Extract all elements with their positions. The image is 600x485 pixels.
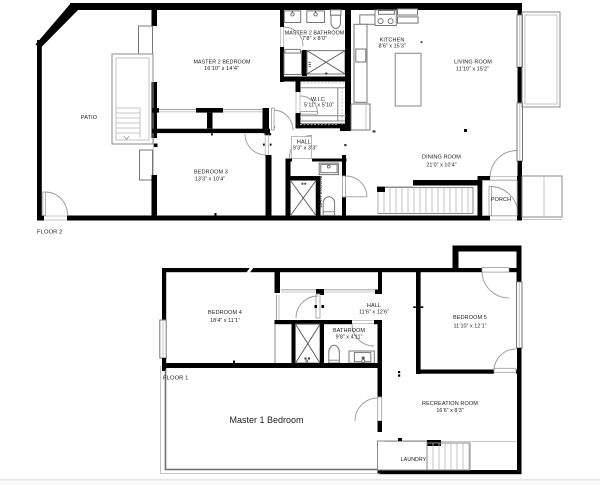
svg-text:5’11” x 5’10”: 5’11” x 5’10” (304, 102, 334, 108)
svg-text:BATHROOM: BATHROOM (318, 175, 324, 207)
svg-text:DINING ROOM: DINING ROOM (422, 154, 461, 160)
svg-text:11’6” x 12’6”: 11’6” x 12’6” (359, 310, 389, 316)
svg-text:BEDROOM 5: BEDROOM 5 (453, 315, 487, 321)
svg-text:8’6” x 15’3”: 8’6” x 15’3” (379, 43, 406, 49)
svg-text:BEDROOM 4: BEDROOM 4 (208, 310, 242, 316)
svg-text:16’10” x 14’4”: 16’10” x 14’4” (204, 66, 239, 72)
svg-text:BEDROOM 3: BEDROOM 3 (194, 170, 228, 176)
svg-text:MASTER 2 BEDROOM: MASTER 2 BEDROOM (194, 59, 251, 65)
svg-text:FLOOR 2: FLOOR 2 (37, 230, 63, 236)
svg-text:21’0” x 10’4”: 21’0” x 10’4” (426, 162, 456, 168)
svg-text:13’3” x 10’4”: 13’3” x 10’4” (195, 177, 225, 183)
svg-text:LIVING ROOM: LIVING ROOM (454, 60, 492, 66)
svg-text:PATIO: PATIO (81, 115, 98, 121)
svg-text:LAUNDRY: LAUNDRY (401, 457, 427, 463)
svg-text:Master 1 Bedroom: Master 1 Bedroom (230, 415, 304, 426)
svg-text:16’6” x 8’3”: 16’6” x 8’3” (436, 408, 463, 414)
svg-text:9’8” x 4’11”: 9’8” x 4’11” (336, 335, 363, 341)
svg-text:HALL: HALL (367, 303, 381, 309)
svg-text:11’10” x 12’1”: 11’10” x 12’1” (454, 324, 487, 330)
svg-text:18’4” x 11’1”: 18’4” x 11’1” (210, 318, 240, 324)
svg-text:11’10” x 15’2”: 11’10” x 15’2” (456, 66, 489, 72)
svg-text:PORCH: PORCH (491, 197, 511, 203)
svg-text:BATHROOM: BATHROOM (333, 328, 365, 334)
svg-text:9’3” x 3’3”: 9’3” x 3’3” (293, 146, 317, 152)
svg-text:RECREATION ROOM: RECREATION ROOM (422, 401, 478, 407)
svg-text:FLOOR 1: FLOOR 1 (163, 376, 189, 382)
svg-text:7’8” x 8’0”: 7’8” x 8’0” (302, 36, 327, 42)
